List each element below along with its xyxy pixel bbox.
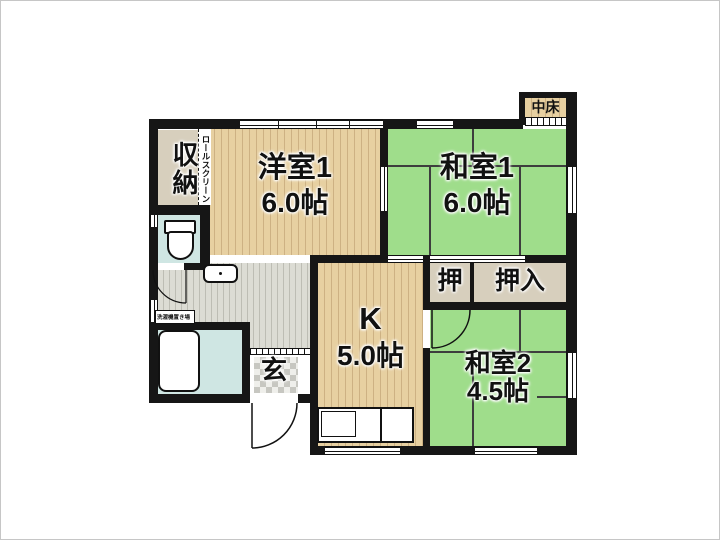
window-divider bbox=[316, 119, 317, 129]
wall-kitchen-right bbox=[423, 348, 430, 448]
floorplan: 洗濯機置き場 収納 ロールスクリーン 洋室1 6.0帖 和室1 6.0帖 中床 … bbox=[0, 0, 720, 540]
entrance-label: 玄 bbox=[250, 357, 298, 384]
entrance-step bbox=[250, 348, 310, 355]
wall-hall-kitchen bbox=[310, 255, 318, 396]
japanese1-name: 和室1 bbox=[388, 153, 566, 183]
oshi-label: 押 bbox=[430, 268, 470, 294]
kitchen-name: K bbox=[318, 303, 423, 336]
laundry-space-label: 洗濯機置き場 bbox=[157, 313, 193, 321]
window-divider bbox=[349, 119, 350, 129]
wall-right bbox=[566, 213, 577, 353]
wall-closet-bottom bbox=[423, 302, 566, 310]
wall-top bbox=[453, 119, 523, 129]
wall-bottom bbox=[400, 446, 475, 455]
wall-top bbox=[149, 119, 240, 129]
wall-bath-right bbox=[242, 322, 250, 398]
entrance-door-arc bbox=[252, 403, 297, 448]
wall-western1-japanese1 bbox=[380, 129, 388, 167]
counter-divider bbox=[380, 407, 382, 443]
wall-left bbox=[149, 322, 158, 402]
wall-bottom-left bbox=[149, 394, 250, 403]
wall-top bbox=[383, 119, 417, 129]
japanese2-size: 4.5帖 bbox=[430, 378, 566, 405]
wall-bottom bbox=[310, 446, 325, 455]
washbasin-drain bbox=[219, 272, 222, 275]
sliding-door bbox=[380, 167, 388, 211]
western1-name: 洋室1 bbox=[210, 153, 380, 183]
laundry-space-box: 洗濯機置き場 bbox=[155, 310, 195, 324]
rollscreen-label: ロールスクリーン bbox=[198, 131, 210, 207]
western1-size: 6.0帖 bbox=[210, 188, 380, 217]
japanese2-name: 和室2 bbox=[430, 350, 566, 377]
sliding-door bbox=[430, 255, 525, 263]
window bbox=[149, 215, 158, 227]
window bbox=[325, 446, 400, 455]
kitchen-size: 5.0帖 bbox=[318, 341, 423, 370]
oshiire-label: 押入 bbox=[474, 268, 566, 294]
wall-western1-bottom bbox=[313, 255, 388, 263]
sliding-door bbox=[388, 255, 423, 263]
toilet-door-opening bbox=[158, 263, 184, 270]
window bbox=[566, 353, 577, 398]
tatami-line bbox=[519, 310, 521, 353]
window bbox=[417, 119, 453, 129]
wall-left bbox=[149, 227, 158, 300]
wall-bottom bbox=[537, 446, 577, 455]
japanese1-size: 6.0帖 bbox=[388, 188, 566, 217]
window bbox=[240, 119, 383, 129]
window-divider bbox=[278, 119, 279, 129]
nakadoko-label: 中床 bbox=[523, 100, 568, 115]
bathtub bbox=[158, 330, 200, 392]
wall-left bbox=[149, 119, 158, 215]
wall-toilet-right bbox=[200, 215, 210, 270]
toilet-bowl bbox=[167, 231, 194, 260]
nakadoko-edge bbox=[525, 117, 566, 126]
kitchen-sink bbox=[321, 411, 356, 437]
window bbox=[566, 167, 577, 213]
wall-japanese1-bottom bbox=[525, 255, 566, 263]
storage-label: 収納 bbox=[159, 133, 197, 205]
wall-western1-japanese1 bbox=[380, 211, 388, 263]
window bbox=[475, 446, 537, 455]
